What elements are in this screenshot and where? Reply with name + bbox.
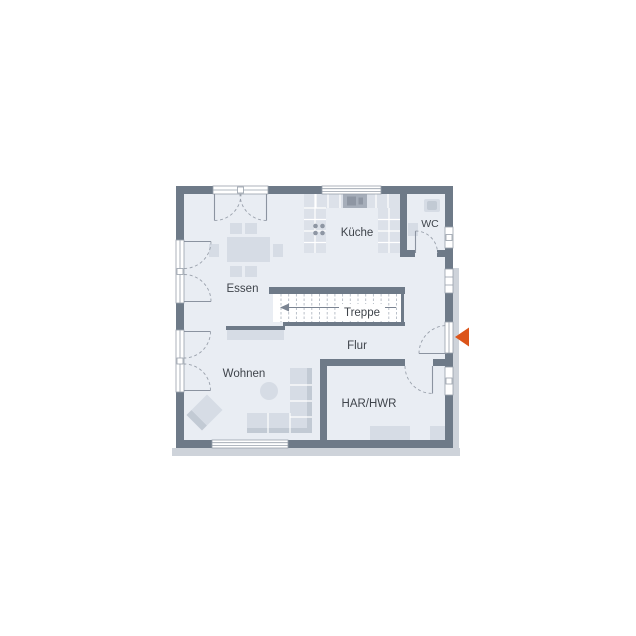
dining-table (227, 237, 270, 262)
wc-wall-vertical (400, 194, 407, 257)
wc-window (445, 227, 453, 248)
stair-wall (269, 287, 405, 294)
sofa-backrest-bottom (247, 428, 312, 433)
room-label-treppe: Treppe (344, 307, 380, 319)
building-shadow-bottom (172, 448, 460, 456)
staircase (273, 294, 401, 322)
dryer (430, 426, 445, 440)
floor-plan: Essen Küche WC Treppe Flur Wohnen HAR/HW… (0, 0, 636, 636)
chair (209, 244, 219, 257)
wc-sink (408, 223, 418, 236)
chair (230, 223, 242, 234)
floor-plan-page: Essen Küche WC Treppe Flur Wohnen HAR/HW… (0, 0, 636, 636)
room-label-wc: WC (421, 218, 439, 230)
room-label-essen: Essen (227, 283, 259, 295)
har-wall-top (320, 359, 405, 366)
har-wall-left (320, 359, 327, 440)
room-label-wohnen: Wohnen (223, 368, 266, 380)
wc-wall-bottom (400, 250, 415, 257)
partial-wall-wohnen (226, 326, 285, 330)
stair-edge-right (401, 294, 404, 326)
sideboard (227, 330, 284, 340)
washer (370, 426, 410, 440)
kitchen-window (322, 186, 381, 194)
wohnen-window (212, 440, 288, 448)
room-label-har-hwr: HAR/HWR (342, 398, 397, 410)
building-shadow-right (453, 268, 459, 448)
utility-appliances (370, 426, 445, 440)
chair (230, 266, 242, 277)
wc-wall-bottom-stub (437, 250, 445, 257)
chair (273, 244, 283, 257)
har-window (445, 367, 453, 395)
sink-drainer (359, 198, 364, 205)
stair-edge-bottom (283, 322, 405, 326)
room-label-kueche: Küche (341, 227, 374, 239)
toilet-seat (427, 201, 437, 210)
chair (245, 223, 257, 234)
chair (245, 266, 257, 277)
coffee-table (260, 382, 278, 400)
room-label-flur: Flur (347, 340, 367, 352)
sink-basin (347, 197, 356, 206)
har-wall-top-stub (433, 359, 445, 366)
flur-window (445, 269, 453, 293)
